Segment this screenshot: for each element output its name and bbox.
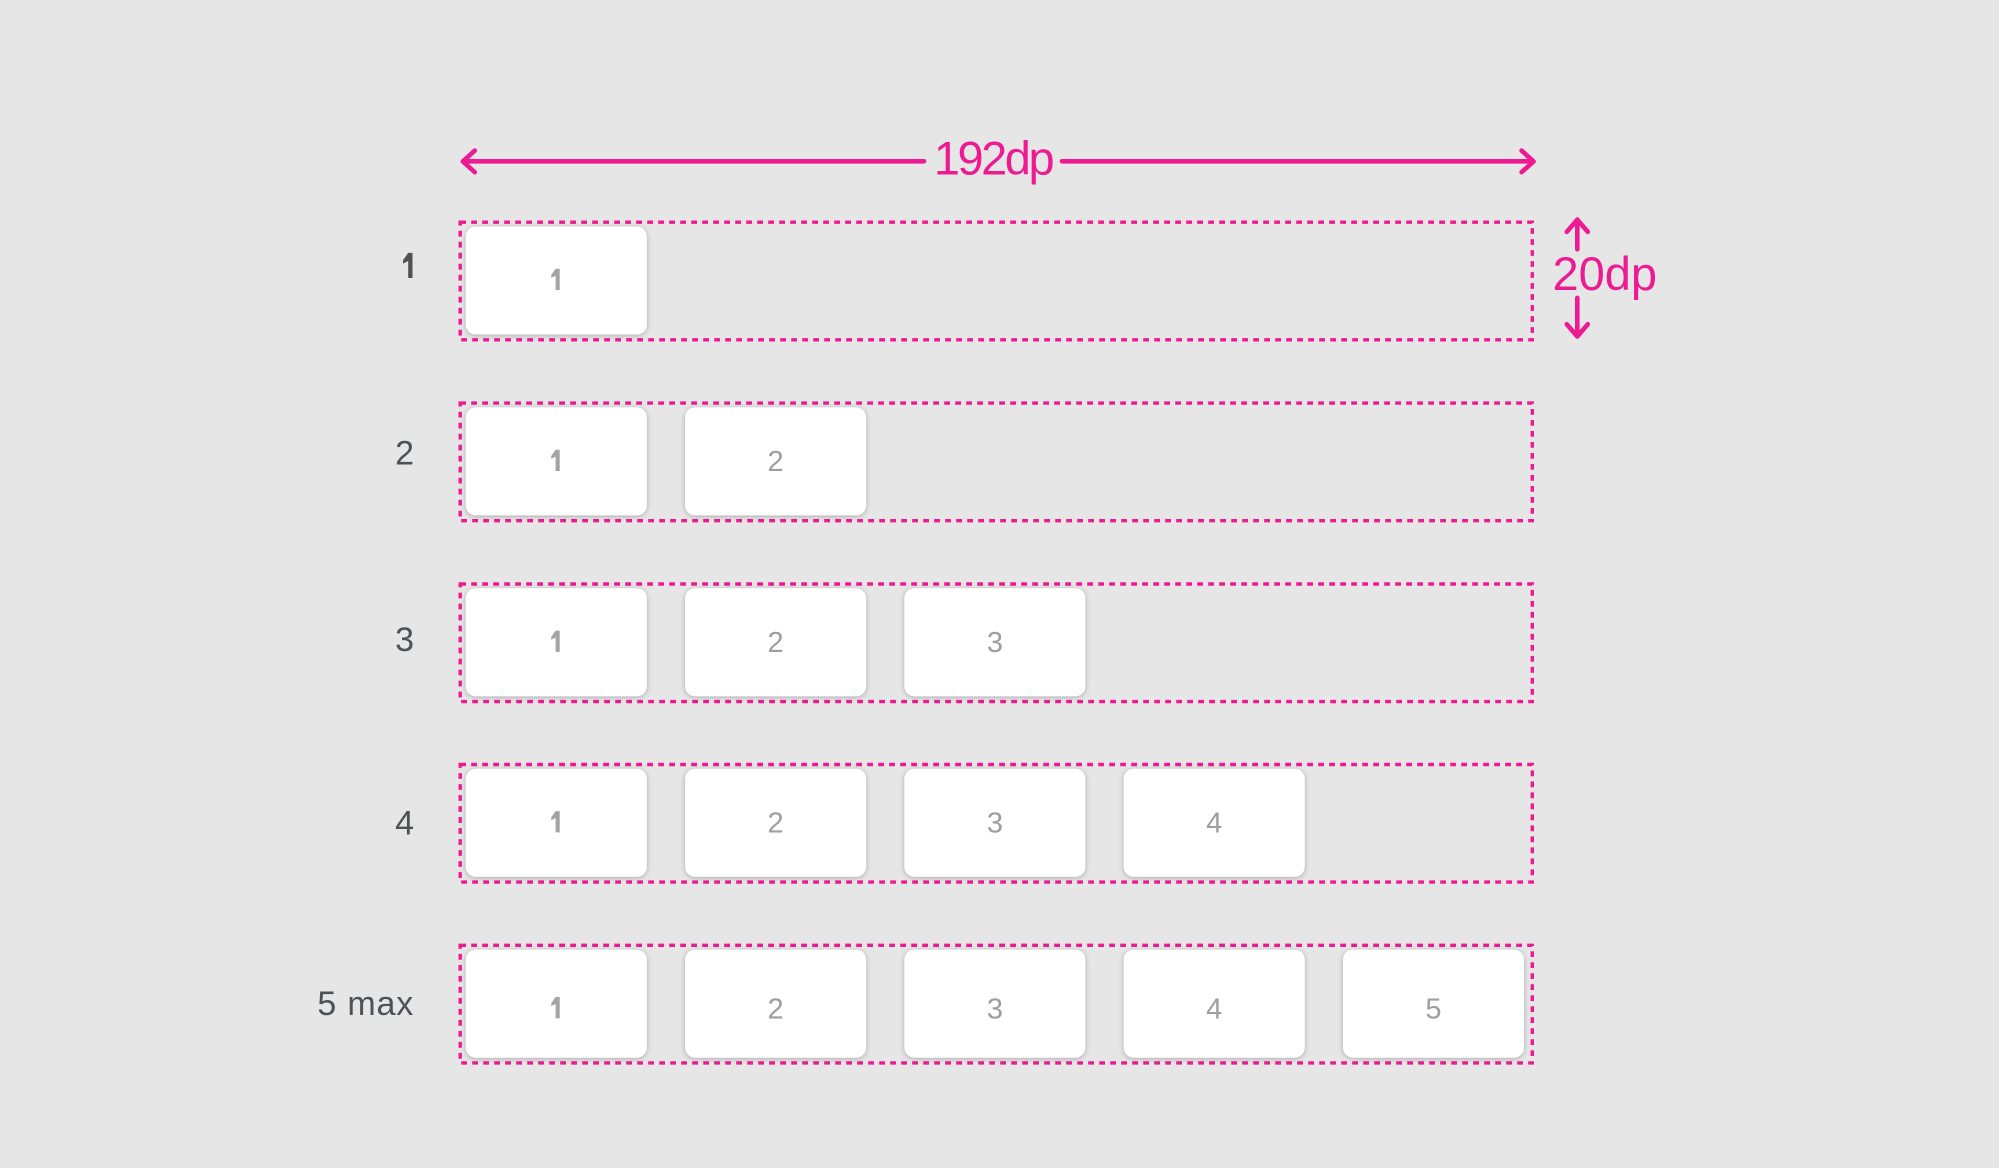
svg-text:2: 2 xyxy=(768,627,784,659)
svg-text:20dp: 20dp xyxy=(1553,247,1658,300)
svg-text:3: 3 xyxy=(395,621,414,659)
svg-text:3: 3 xyxy=(987,993,1003,1025)
svg-text:2: 2 xyxy=(768,993,784,1025)
svg-text:2: 2 xyxy=(768,807,784,839)
svg-text:3: 3 xyxy=(987,627,1003,659)
svg-text:192dp: 192dp xyxy=(934,132,1054,185)
svg-text:4: 4 xyxy=(1206,807,1222,839)
svg-text:5 max: 5 max xyxy=(317,985,414,1023)
svg-text:2: 2 xyxy=(768,446,784,478)
svg-text:3: 3 xyxy=(987,807,1003,839)
svg-text:2: 2 xyxy=(395,435,414,473)
svg-text:4: 4 xyxy=(395,804,414,842)
svg-text:4: 4 xyxy=(1206,993,1222,1025)
svg-text:5: 5 xyxy=(1425,993,1441,1025)
